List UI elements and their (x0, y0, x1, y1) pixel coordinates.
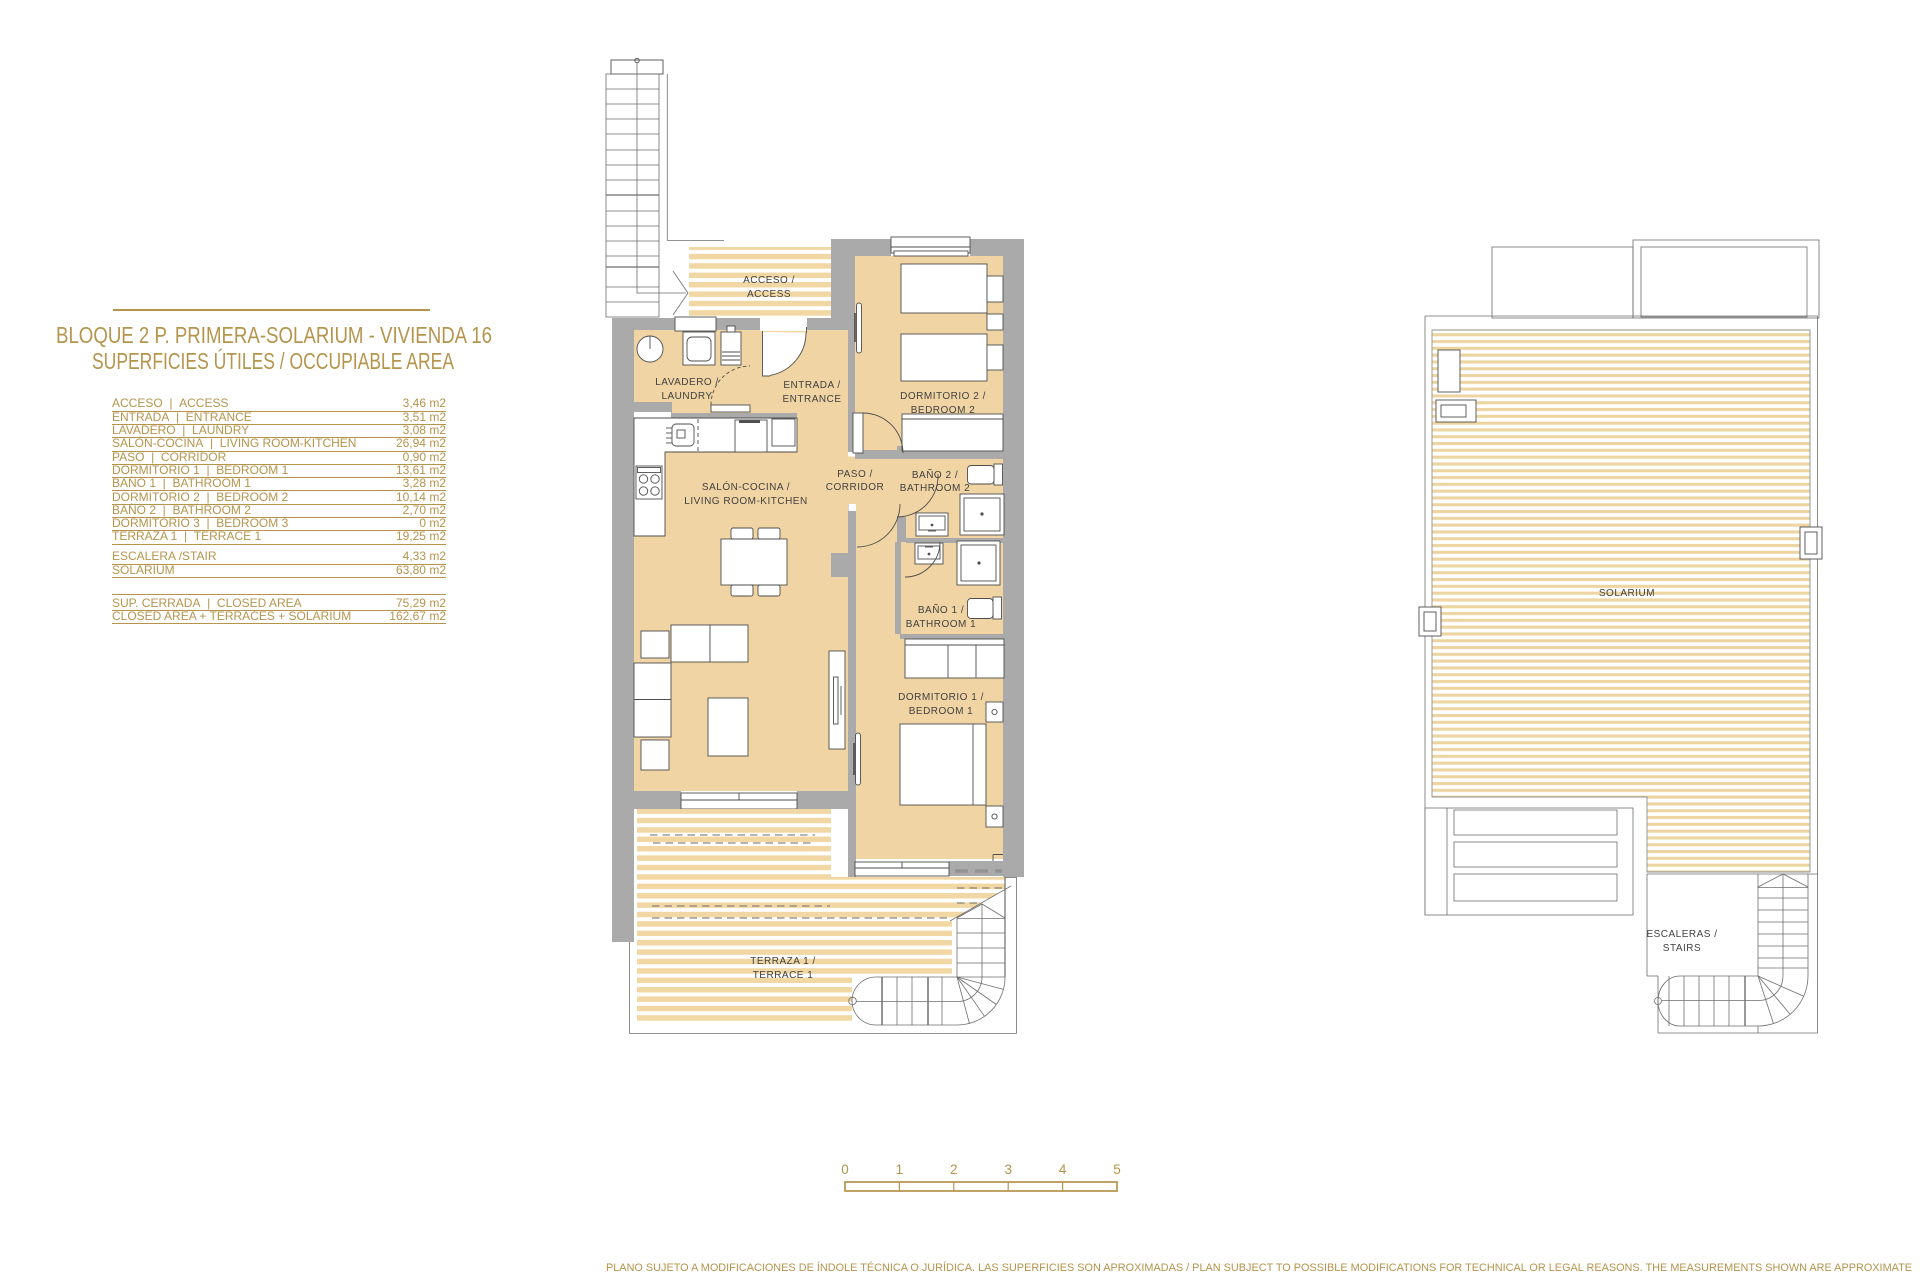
svg-text:4: 4 (1059, 1162, 1067, 1177)
svg-text:LAUNDRY: LAUNDRY (661, 391, 712, 402)
svg-text:ACCESS: ACCESS (747, 289, 791, 300)
svg-text:1: 1 (896, 1162, 904, 1177)
svg-text:BATHROOM 2: BATHROOM 2 (900, 483, 970, 494)
svg-text:BEDROOM 1: BEDROOM 1 (909, 706, 974, 717)
svg-text:LIVING ROOM-KITCHEN: LIVING ROOM-KITCHEN (684, 496, 807, 507)
svg-text:CORRIDOR: CORRIDOR (826, 482, 884, 493)
svg-text:SUPERFICIES ÚTILES / OCCUPIABL: SUPERFICIES ÚTILES / OCCUPIABLE AREA (92, 348, 454, 374)
svg-text:BAÑO 2 /: BAÑO 2 / (912, 468, 958, 481)
svg-text:2: 2 (950, 1162, 958, 1177)
svg-text:0: 0 (841, 1162, 849, 1177)
svg-text:DORMITORIO 1 /: DORMITORIO 1 / (898, 692, 984, 703)
svg-text:ENTRADA /: ENTRADA / (783, 380, 840, 391)
svg-text:BATHROOM 1: BATHROOM 1 (906, 619, 976, 630)
svg-text:PASO /: PASO / (837, 469, 873, 480)
svg-text:BEDROOM 2: BEDROOM 2 (911, 405, 976, 416)
svg-text:TERRACE 1: TERRACE 1 (753, 970, 814, 981)
svg-text:3: 3 (1004, 1162, 1012, 1177)
svg-text:SALÓN-COCINA /: SALÓN-COCINA / (702, 480, 790, 493)
svg-text:PLANO SUJETO A MODIFICACIONES: PLANO SUJETO A MODIFICACIONES DE ÍNDOLE … (606, 1261, 1912, 1274)
svg-text:TERRAZA 1 /: TERRAZA 1 / (750, 956, 816, 967)
svg-text:ESCALERAS /: ESCALERAS / (1646, 929, 1717, 940)
svg-text:BAÑO 1 /: BAÑO 1 / (918, 603, 964, 616)
svg-text:5: 5 (1113, 1162, 1121, 1177)
svg-text:DORMITORIO 2 /: DORMITORIO 2 / (900, 391, 986, 402)
svg-text:BLOQUE 2 P. PRIMERA-SOLARIUM -: BLOQUE 2 P. PRIMERA-SOLARIUM - VIVIENDA … (56, 322, 492, 348)
svg-text:SOLARIUM: SOLARIUM (1599, 588, 1655, 599)
svg-text:ACCESO /: ACCESO / (743, 275, 795, 286)
svg-text:LAVADERO /: LAVADERO / (655, 377, 719, 388)
svg-text:ENTRANCE: ENTRANCE (782, 394, 841, 405)
svg-text:STAIRS: STAIRS (1663, 943, 1701, 954)
